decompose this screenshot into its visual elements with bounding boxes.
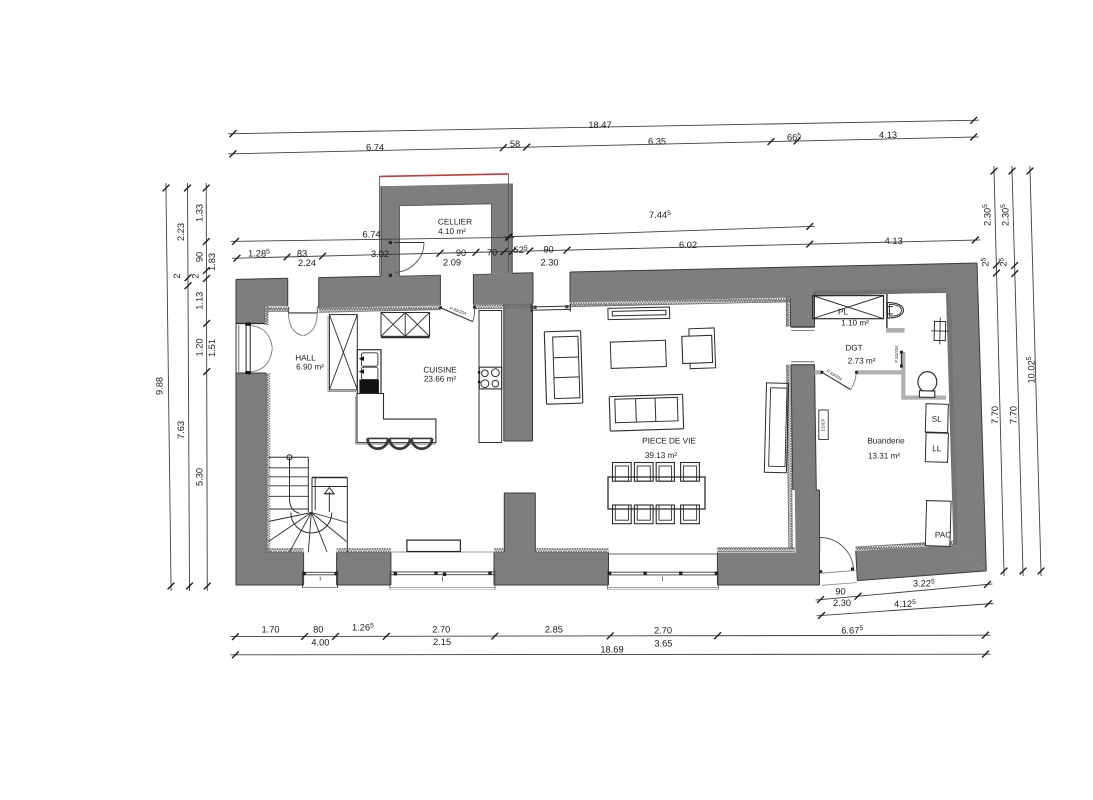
svg-text:2: 2 xyxy=(172,273,182,278)
svg-text:1.13: 1.13 xyxy=(195,292,205,310)
svg-text:4.00: 4.00 xyxy=(311,637,329,647)
svg-text:2.15: 2.15 xyxy=(433,637,451,647)
svg-text:7.63: 7.63 xyxy=(176,421,186,439)
svg-text:ED/EP: ED/EP xyxy=(821,418,826,431)
svg-text:6.90 m²: 6.90 m² xyxy=(296,362,324,371)
svg-text:1.83: 1.83 xyxy=(207,253,217,271)
svg-text:9.88: 9.88 xyxy=(155,377,165,395)
svg-text:4.13: 4.13 xyxy=(879,130,897,140)
svg-text:58: 58 xyxy=(510,139,520,149)
svg-text:2.73 m²: 2.73 m² xyxy=(848,356,876,365)
svg-text:4.10 m²: 4.10 m² xyxy=(438,227,466,236)
svg-text:1.70: 1.70 xyxy=(261,625,279,635)
svg-text:1.33: 1.33 xyxy=(195,204,205,222)
svg-text:18.69: 18.69 xyxy=(600,644,623,654)
svg-text:2.23: 2.23 xyxy=(176,223,186,241)
svg-text:2.70: 2.70 xyxy=(432,625,450,635)
svg-text:P 83/204: P 83/204 xyxy=(894,345,899,363)
svg-text:70: 70 xyxy=(487,247,497,257)
svg-text:6.02: 6.02 xyxy=(679,240,697,250)
svg-text:1.20: 1.20 xyxy=(195,338,205,356)
svg-text:83: 83 xyxy=(297,249,307,259)
svg-text:2.70: 2.70 xyxy=(654,626,672,636)
svg-text:Buanderie: Buanderie xyxy=(867,436,905,445)
svg-text:2.09: 2.09 xyxy=(443,257,461,267)
svg-text:90: 90 xyxy=(543,245,553,255)
svg-text:LL: LL xyxy=(932,444,942,453)
svg-text:18.47: 18.47 xyxy=(588,120,611,130)
svg-text:1.51: 1.51 xyxy=(207,339,217,357)
svg-text:CUISINE: CUISINE xyxy=(423,365,457,374)
svg-text:1.10 m²: 1.10 m² xyxy=(841,318,869,327)
svg-text:2.30: 2.30 xyxy=(540,257,558,267)
svg-text:PAC: PAC xyxy=(935,531,951,540)
svg-text:3.65: 3.65 xyxy=(654,638,672,648)
svg-text:23.66 m²: 23.66 m² xyxy=(424,375,457,384)
svg-text:2.30: 2.30 xyxy=(833,598,851,608)
svg-text:DGT: DGT xyxy=(845,343,862,352)
svg-text:7.70: 7.70 xyxy=(1009,406,1019,424)
svg-text:CELLIER: CELLIER xyxy=(438,218,472,227)
svg-text:7.70: 7.70 xyxy=(990,406,1000,424)
svg-text:PL: PL xyxy=(838,307,848,316)
svg-text:13.31 m²: 13.31 m² xyxy=(868,451,901,460)
svg-text:90: 90 xyxy=(835,587,845,597)
svg-text:2.85: 2.85 xyxy=(545,625,563,635)
svg-text:2.24: 2.24 xyxy=(298,258,316,268)
svg-text:10.025: 10.025 xyxy=(1026,356,1036,383)
svg-text:6.74: 6.74 xyxy=(366,143,384,153)
svg-text:PIECE DE VIE: PIECE DE VIE xyxy=(642,437,696,446)
svg-text:80: 80 xyxy=(313,625,323,635)
svg-text:SL: SL xyxy=(932,415,943,424)
svg-text:2: 2 xyxy=(191,273,201,278)
svg-text:3.02: 3.02 xyxy=(371,249,389,259)
svg-text:4.13: 4.13 xyxy=(885,236,903,246)
svg-text:6.35: 6.35 xyxy=(648,137,666,147)
svg-text:6.74: 6.74 xyxy=(362,229,380,239)
svg-text:HALL: HALL xyxy=(295,354,316,363)
svg-text:5.30: 5.30 xyxy=(195,468,205,486)
svg-text:39.13 m²: 39.13 m² xyxy=(645,451,678,460)
svg-text:90: 90 xyxy=(195,252,205,262)
